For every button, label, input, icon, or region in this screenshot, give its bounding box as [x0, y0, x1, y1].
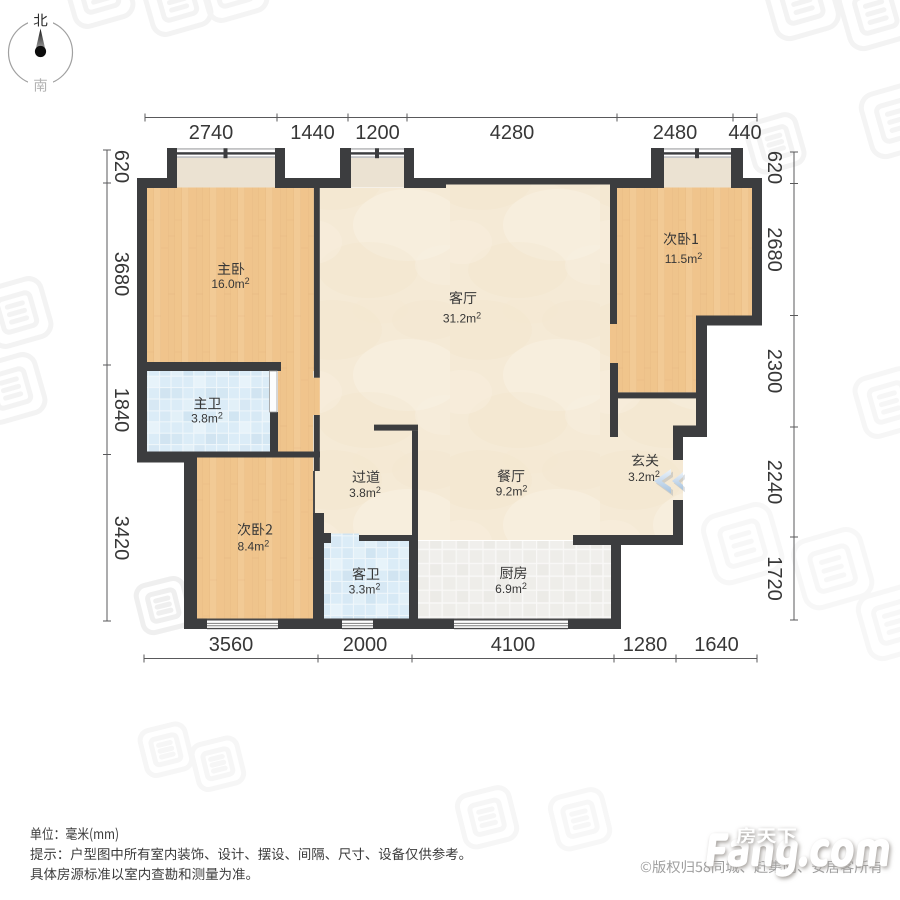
svg-text:440: 440 — [728, 122, 761, 144]
svg-text:1720: 1720 — [763, 556, 785, 601]
svg-text:620: 620 — [110, 150, 132, 183]
svg-text:3420: 3420 — [110, 516, 132, 561]
svg-text:1840: 1840 — [110, 388, 132, 433]
svg-text:1200: 1200 — [355, 122, 400, 144]
svg-text:4280: 4280 — [490, 122, 535, 144]
svg-text:1280: 1280 — [623, 634, 668, 656]
svg-text:1640: 1640 — [694, 634, 739, 656]
svg-text:2480: 2480 — [653, 122, 698, 144]
svg-text:2740: 2740 — [189, 122, 234, 144]
svg-text:4100: 4100 — [491, 634, 536, 656]
svg-text:31.2m2: 31.2m2 — [443, 311, 481, 326]
svg-text:11.5m2: 11.5m2 — [665, 251, 702, 266]
svg-text:16.0m2: 16.0m2 — [211, 276, 249, 291]
svg-text:3560: 3560 — [209, 634, 254, 656]
svg-text:2240: 2240 — [763, 460, 785, 505]
svg-text:1440: 1440 — [290, 122, 335, 144]
svg-text:2300: 2300 — [763, 349, 785, 394]
svg-text:620: 620 — [763, 151, 785, 184]
svg-text:2680: 2680 — [763, 227, 785, 272]
svg-text:3680: 3680 — [110, 252, 132, 297]
svg-text:2000: 2000 — [343, 634, 388, 656]
